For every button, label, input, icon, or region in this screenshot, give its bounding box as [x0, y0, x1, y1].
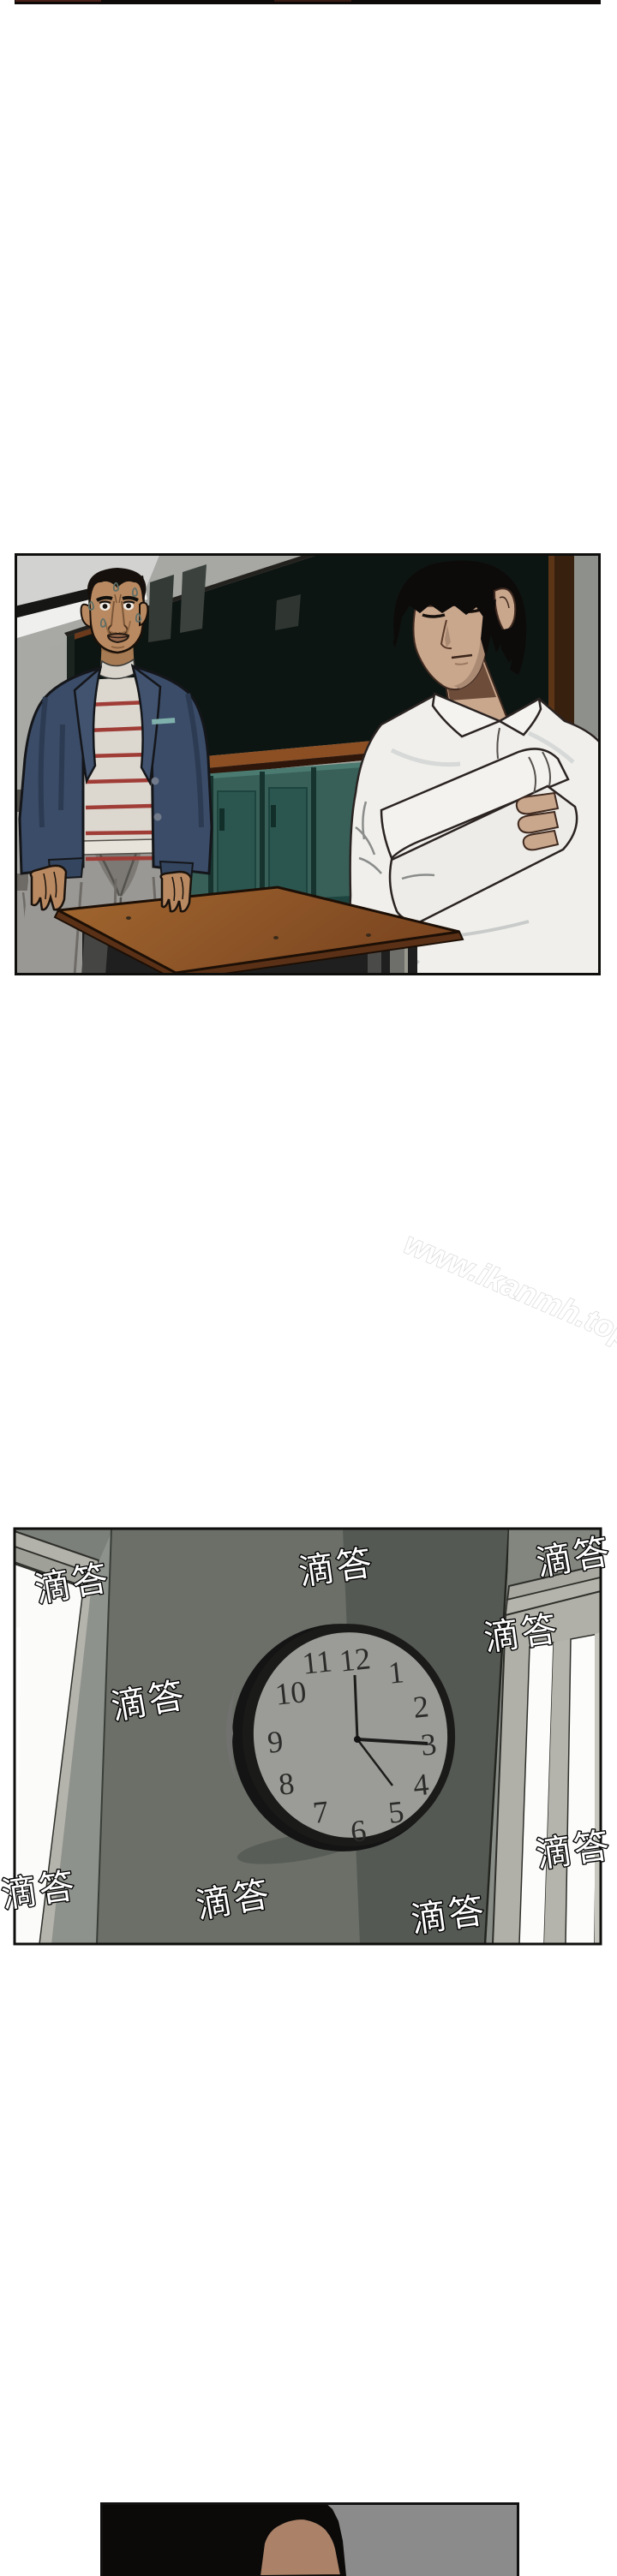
svg-text:12: 12 — [338, 1641, 372, 1679]
svg-text:www.ikanmh.top: www.ikanmh.top — [399, 1225, 617, 1353]
svg-text:11: 11 — [301, 1643, 334, 1680]
svg-text:10: 10 — [273, 1674, 308, 1712]
